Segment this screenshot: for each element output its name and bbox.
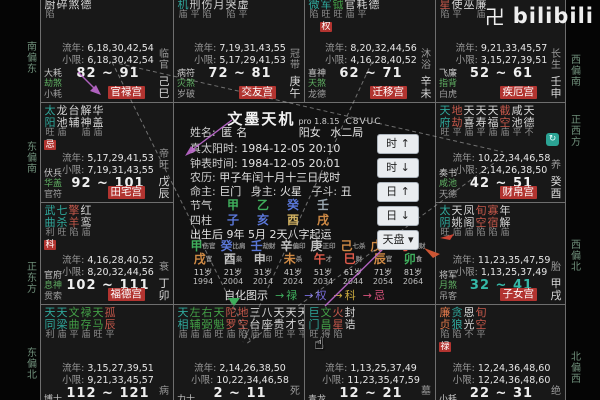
palace-numbers: 流年: 2,14,26,38,50小限: 10,22,34,46,582 ~ 1… [190,363,290,400]
xiaoxian-values: 11,23,35,47,59 [347,375,420,386]
star-旬空: 旬空陷 [475,205,487,239]
palace-numbers: 流年: 11,23,35,47,59小限: 1,13,25,37,4932 ~ … [452,255,551,292]
branch-辛未: 辛 未 [420,76,432,100]
palace-branch-col: 冠 带庚 午 [289,49,301,100]
star-status [73,128,76,139]
dayun-age: 41岁 [278,268,308,277]
liunian-line: 流年: 10,22,34,46,58 [452,153,551,165]
side-god: 月煞 [439,281,457,292]
changsheng-star: 死 [289,386,301,397]
liunian-line: 流年: 1,13,25,37,49 [321,363,421,375]
star-char-top: 太 [440,205,451,217]
dayun-age: 21岁 [218,268,248,277]
star-天梁: 天梁庙 [56,307,68,341]
palace-hai[interactable]: 廉贞陷禄贪狼陷恩光不旬空平流年: 12,24,36,48,60小限: 12,24… [435,304,566,400]
liunian-values: 2,14,26,38,50 [219,363,285,374]
star-status: 庙 [190,330,199,341]
star-天魁: 天魁旺 [213,307,225,341]
palace-numbers: 流年: 1,13,25,37,49小限: 11,23,35,47,5912 ~ … [321,363,421,400]
star-char-top: 天 [476,105,487,117]
star-char-top: 天 [214,307,225,319]
star-char-bottom: 煞 [69,0,80,10]
palace-branch-col: 胎甲 戌 [550,262,562,302]
star-status: 庙 [226,330,235,341]
star-status: 旺 [274,330,283,341]
palace-side-gods: 伏兵华盖官符 [44,169,62,201]
star-咸池: 咸池平 [511,105,523,139]
star-char-bottom: 刑 [190,0,201,10]
side-god: 岁破 [177,90,195,101]
star-封诰: 封诰 [344,307,356,341]
star-char-bottom: 罗 [226,319,237,331]
star-char-top: 天 [440,105,451,117]
liunian-label: 流年: [194,43,216,54]
branch-癸酉: 癸 酉 [550,176,562,200]
star-char-bottom: 辰 [105,319,116,331]
star-char-bottom: 贵 [274,319,285,331]
star-char-top: 廉 [440,307,451,319]
dayun-year: 2034 [308,277,338,286]
changsheng-star: 胎 [550,262,562,273]
dayun-year: 2044 [338,277,368,286]
decade-range: 72 ~ 81 [190,68,290,80]
palace-numbers: 流年: 3,15,27,39,51小限: 9,21,33,45,57112 ~ … [57,363,159,400]
dayun-year: 2014 [248,277,278,286]
legend-item-权: 权 [316,289,327,302]
legend-label: 自化图示 [224,289,268,302]
star-char-bottom: 星 [440,0,451,10]
star-地劫: 地劫平 [451,105,463,139]
liunian-values: 6,18,30,42,54 [87,43,153,54]
legend-arrow: → [275,289,284,302]
star-天钺: 天钺旺 [332,0,344,32]
liunian-line: 流年: 12,24,36,48,60 [452,363,551,375]
xiaoxian-label: 小限: [325,55,347,66]
star-status: 庙 [345,10,354,21]
star-char-top: 右 [202,307,213,319]
star-char-top: 红 [81,205,92,217]
dayun-column[interactable]: 壬劫财申印31岁2014 [248,240,278,286]
star-char-bottom: 杀 [57,217,68,229]
star-天同: 天同利 [44,307,56,341]
palace-si[interactable]: 天厨陷破碎 阴煞 月德 流年: 6,18,30,42,54小限: 6,18,30… [40,0,174,103]
xiaoxian-label: 小限: [191,375,213,386]
palace-side-gods: 病符灾煞岁破 [177,69,195,101]
star-status: 平 [105,330,114,341]
button-天盘[interactable]: 天盘 ▾ [377,230,419,250]
palace-side-gods: 喜神天煞龙德 [308,69,326,101]
palace-you[interactable]: 天府旺地劫平天喜庙天寿平天福庙截空庙咸池平天德不流年: 10,22,34,46,… [435,102,566,203]
star-status: 陷 [202,10,211,21]
star-row: 武曲利科七杀旺擎羊陷红鸾庙 [44,205,92,250]
star-擎羊: 擎羊陷 [68,205,80,250]
branch-庚午: 庚 午 [289,76,301,100]
dayun-branch: 戌官 [188,253,218,265]
star-龙德: 龙德 [368,0,380,32]
star-char-bottom: 军 [321,0,332,10]
palace-side-gods: 小耗亡神病符 [439,395,457,400]
star-char-bottom: 德 [524,117,535,129]
liunian-values: 9,21,33,45,57 [481,43,547,54]
dayun-column[interactable]: 庚正印午才51岁2034 [308,240,338,286]
star-char-top: 孤 [105,307,116,319]
decade-range: 12 ~ 21 [321,388,421,400]
dayun-branch: 申印 [248,253,278,265]
palace-side-gods: 力士攀鞍晦气 [177,395,195,400]
palace-side-gods: 官府息神贯索 [44,271,62,303]
side-god: 龙德 [308,90,326,101]
star-char-top: 擎 [69,205,80,217]
star-破军: 破军旺权 [320,0,332,32]
star-武曲: 武曲利科 [44,205,56,250]
palace-branch-col: 帝 旺戊 辰 [158,149,170,200]
sihua-marker-权: 权 [320,22,331,32]
changsheng-star: 帝 旺 [158,149,170,171]
dayun-age: 51岁 [308,268,338,277]
changsheng-star: 衰 [158,262,170,273]
star-row: 太阳旺忌龙池庙台辅 解神庙华盖庙 [44,105,104,150]
compass-label-西偏北: 西 偏 北 [569,240,583,273]
star-char-bottom: 光 [464,319,475,331]
xiaoxian-values: 8,20,32,44,56 [87,267,153,278]
decade-range: 22 ~ 31 [452,388,551,400]
liunian-values: 11,23,35,47,59 [478,255,551,266]
star-status: 旺 [45,128,54,139]
xiaoxian-label: 小限: [62,165,84,176]
true-solar-label: 真太阳时: [190,142,238,155]
star-row: 铃星陷天使平天巫 蜚廉庙 [439,0,487,21]
star-status: 庙 [464,128,473,139]
star-char-top: 文 [69,307,80,319]
star-char-bottom: 伤 [202,0,213,10]
sihua-marker-科: 科 [44,240,55,250]
compass-label-正东方: 正 东 方 [25,262,39,295]
dayun-year: 2004 [218,277,248,286]
star-天机: 天机庙 [177,0,189,21]
star-char-bottom: 劫 [452,117,463,129]
star-status: 庙 [262,330,271,341]
star-status: 庙 [488,128,497,139]
star-解神: 解神庙 [80,105,92,150]
decade-range: 112 ~ 121 [57,388,159,400]
star-status: 庙 [500,228,509,239]
branch-己巳: 己 巳 [158,76,170,100]
palace-numbers: 流年: 9,21,33,45,57小限: 3,15,27,39,5152 ~ 6… [452,43,551,80]
xiaoxian-values: 6,18,30,42,54 [87,55,153,66]
star-status: 旺 [440,228,449,239]
name-line: 姓名: 匿名 阳女 水二局 [190,124,363,140]
liunian-label: 流年: [62,255,84,266]
star-char-bottom: 福 [488,117,499,129]
palace-numbers: 流年: 8,20,32,44,56小限: 4,16,28,40,5262 ~ 7… [321,43,421,80]
star-char-top: 三 [250,307,261,319]
changsheng-star: 养 [550,160,562,171]
palace-name-si[interactable]: 官禄宫 [108,86,146,99]
star-天府: 天府旺 [439,105,451,139]
liunian-values: 12,24,36,48,60 [478,363,551,374]
dayun-stem: 庚正印 [308,240,338,252]
star-row: 天相庙左辅庙右弼庙天魁旺陀罗庙地空陷三台庙八座庙天贵旺天才平天空平 [177,307,305,341]
xiaoxian-label: 小限: [456,165,478,176]
star-截空: 截空庙 [499,105,511,139]
dayun-column[interactable]: 癸比肩酉枭21岁2004 [218,240,248,286]
star-铃星: 铃星陷 [439,0,451,21]
star-char-bottom: 哭 [226,0,237,10]
star-status: 庙 [178,10,187,21]
star-天福: 天福庙 [487,105,499,139]
xiaoxian-values: 10,22,34,46,58 [216,375,289,386]
star-row: 天府旺地劫平天喜庙天寿平天福庙截空庙咸池平天德不 [439,105,535,139]
star-寡宿: 寡宿陷 [487,205,499,239]
palace-xu[interactable]: 太阴旺天姚庙凤阁庙旬空陷寡宿陷年解庙流年: 11,23,35,47,59小限: … [435,202,566,305]
xiaoxian-label: 小限: [456,267,478,278]
gender-value: 阳女 [299,126,321,139]
star-char-top: 火 [333,307,344,319]
dayun-stem: 甲伤官 [188,240,218,252]
star-华盖: 华盖庙 [92,105,104,150]
liunian-line: 流年: 8,20,32,44,56 [321,43,421,55]
side-god: 灾煞 [177,79,195,90]
star-status: 庙 [464,228,473,239]
side-god: 大耗 [44,69,62,80]
star-status: 庙 [250,330,259,341]
star-char-bottom: 鸾 [81,217,92,229]
legend-arrow: → [304,289,313,302]
xiaoxian-label: 小限: [194,55,216,66]
star-char-bottom: 池 [57,117,68,129]
star-天官: 天官庙 [344,0,356,32]
star-char-top: 旬 [476,205,487,217]
palace-name-you[interactable]: 财帛宫 [500,186,538,199]
star-char-top: 天 [464,105,475,117]
side-god: 吊客 [439,292,457,303]
star-char-bottom: 寿 [476,117,487,129]
liunian-values: 4,16,28,40,52 [87,255,153,266]
liunian-line: 流年: 7,19,31,43,55 [190,43,290,55]
decade-range: 52 ~ 61 [452,68,551,80]
palace-name-chen[interactable]: 田宅宫 [108,186,146,199]
button-日-up[interactable]: 日 ↑ [377,182,419,202]
palace-branch-col: 墓丙 子 [420,386,432,400]
changsheng-star: 长 生 [550,49,562,71]
dayun-column[interactable]: 己七杀巳财61岁2044 [338,240,368,286]
palace-name-wu[interactable]: 交友宫 [239,86,277,99]
dayun-stem: 癸比肩 [218,240,248,252]
star-左辅: 左辅庙 [189,307,201,341]
branch-甲戌: 甲 戌 [550,278,562,302]
star-char-top: 天 [488,105,499,117]
side-god: 病符 [177,69,195,80]
liunian-line: 流年: 4,16,28,40,52 [57,255,159,267]
zidou-value: 丑 [341,185,352,198]
star-char-top: 天 [274,307,285,319]
star-天虚: 天虚平 [237,0,249,21]
star-禄存: 禄存庙 [80,307,92,341]
true-solar-line: 真太阳时: 1984-12-05 20:10 [190,140,340,156]
sihua-legend: 自化图示→禄→权→科→忌 [174,287,435,303]
changsheng-star: 墓 [420,386,432,397]
star-廉贞: 廉贞陷禄 [439,307,451,352]
star-char-bottom: 耗 [357,0,368,10]
star-char-top: 天 [57,307,68,319]
star-月德: 月德 [80,0,92,21]
star-char-bottom: 机 [178,0,189,10]
star-char-bottom: 府 [440,117,451,129]
button-时-down[interactable]: 时 ↓ [377,158,419,178]
palace-branch-col: 病丙 寅 [158,386,170,400]
star-status: 庙 [81,330,90,341]
star-文曲: 文曲平 [68,307,80,341]
star-status [85,10,88,21]
star-status: 平 [452,128,461,139]
palace-wei[interactable]: 紫微陷破军旺权天钺旺天官庙天耗平龙德 流年: 8,20,32,44,56小限: … [304,0,436,103]
palace-numbers: 流年: 10,22,34,46,58小限: 2,14,26,38,5042 ~ … [452,153,551,190]
palace-branch-col: 沐 浴辛 未 [420,49,432,100]
star-陀罗: 陀罗庙 [225,307,237,341]
star-天刑: 天刑平 [189,0,201,21]
star-char-top: 七 [57,205,68,217]
compass-label-西偏南: 西 偏 南 [569,55,583,88]
star-三台: 三台庙 [249,307,261,341]
star-char-bottom: 存 [81,319,92,331]
liunian-values: 1,13,25,37,49 [350,363,416,374]
star-status: 平 [190,10,199,21]
xiaoxian-label: 小限: [62,55,84,66]
dayun-stem-tengod: 七杀 [353,242,366,250]
star-status: 平 [512,128,521,139]
star-char-top: 武 [45,205,56,217]
star-status [373,10,376,21]
star-恩光: 恩光不 [463,307,475,352]
star-status: 庙 [202,330,211,341]
star-天德: 天德不 [523,105,535,139]
button-时-up[interactable]: 时 ↑ [377,134,419,154]
star-status: 陷 [45,10,54,21]
palace-chou[interactable]: 天相庙左辅庙右弼庙天魁旺陀罗庙地空陷三台庙八座庙天贵旺天才平天空平流年: 2,1… [173,304,305,400]
star-status: 庙 [452,228,461,239]
xiaoxian-label: 小限: [453,375,475,386]
xiaoxian-values: 5,17,29,41,53 [219,55,285,66]
side-god: 贯索 [44,292,62,303]
star-紫微: 紫微陷 [308,0,320,32]
branch-壬申: 壬 申 [550,76,562,100]
star-row: 廉贞陷禄贪狼陷恩光不旬空平 [439,307,487,352]
liunian-values: 3,15,27,39,51 [87,363,153,374]
star-status: 平 [452,10,461,21]
palace-side-gods: 飞廉指背白虎 [439,69,457,101]
star-天巫: 天巫 [463,0,475,21]
palace-side-gods: 大耗劫煞小耗 [44,69,62,101]
liunian-values: 10,22,34,46,58 [478,153,551,164]
palace-name-shen[interactable]: 疾厄宫 [500,86,538,99]
star-char-bottom: 微 [309,0,320,10]
dayun-branch-tengod: 财 [356,255,363,263]
star-char-top: 太 [45,105,56,117]
palace-mao[interactable]: 武曲利科七杀旺擎羊陷红鸾庙流年: 4,16,28,40,52小限: 8,20,3… [40,202,174,305]
palace-branch-col: 绝乙 亥 [550,386,562,400]
star-status [218,10,221,21]
side-god: 官符 [44,190,62,201]
palace-wu[interactable]: 天机庙天刑平天伤陷天月 天哭陷天虚平流年: 7,19,31,43,55小限: 5… [173,0,305,103]
palace-name-wei[interactable]: 迁移宫 [370,86,408,99]
side-god: 飞廉 [439,69,457,80]
dayun-branch-tengod: 印 [266,255,273,263]
palace-chen[interactable]: 太阳旺忌龙池庙台辅 解神庙华盖庙流年: 5,17,29,41,53小限: 7,1… [40,102,174,203]
dayun-stem: 壬劫财 [248,240,278,252]
star-status: 陷 [333,330,342,341]
palace-side-gods: 青龙将星岁建 [308,395,326,400]
quick-action-icon[interactable]: ↻ [546,133,559,146]
dayun-column[interactable]: 甲伤官戌官11岁1994 [188,240,218,286]
star-row: 紫微陷破军旺权天钺旺天官庙天耗平龙德 [308,0,380,32]
star-char-bottom: 才 [286,319,297,331]
dayun-year: 2024 [278,277,308,286]
dayun-year: 1994 [188,277,218,286]
star-七杀: 七杀旺 [56,205,68,250]
star-char-top: 凤 [464,205,475,217]
palace-name-mao[interactable]: 福德宫 [108,288,146,301]
xiaoxian-values: 3,15,27,39,51 [481,55,547,66]
star-status: 陷 [440,330,449,341]
dayun-branch-tengod: 官 [206,255,213,263]
palace-numbers: 流年: 7,19,31,43,55小限: 5,17,29,41,5372 ~ 8… [190,43,290,80]
star-char-bottom: 钺 [333,0,344,10]
star-char-top: 天 [93,307,104,319]
star-char-top: 截 [500,105,511,117]
palace-name-xu[interactable]: 子女宫 [500,288,538,301]
dayun-stem-tengod: 正印 [323,242,336,250]
button-日-down[interactable]: 日 ↓ [377,206,419,226]
star-右弼: 右弼庙 [201,307,213,341]
star-status: 平 [286,330,295,341]
side-god: 指背 [439,79,457,90]
palace-branch-col: 临 官己 巳 [158,49,170,100]
star-status: 平 [476,128,485,139]
star-status: 利 [45,330,54,341]
dayun-column[interactable]: 辛偏印未杀41岁2024 [278,240,308,286]
star-char-top: 禄 [81,307,92,319]
liunian-label: 流年: [325,43,347,54]
star-八座: 八座庙 [261,307,273,341]
dayun-year: 2064 [398,277,428,286]
star-char-bottom: 月 [214,0,225,10]
star-status: 平 [238,10,247,21]
star-status: 陷 [309,10,318,21]
sihua-marker-忌: 忌 [44,140,55,150]
star-char-bottom: 台 [250,319,261,331]
liunian-line: 流年: 3,15,27,39,51 [57,363,159,375]
star-char-top: 旬 [476,307,487,319]
star-char-bottom: 空 [476,319,487,331]
star-row: 太阴旺天姚庙凤阁庙旬空陷寡宿陷年解庙 [439,205,511,239]
palace-yin[interactable]: 天同利天梁庙文曲平禄存庙天马旺孤辰平流年: 3,15,27,39,51小限: 9… [40,304,174,400]
star-char-top: 恩 [464,307,475,319]
compass-label-正西方: 正 西 方 [569,115,583,148]
side-god: 将军 [439,271,457,282]
star-status: 旺 [321,10,330,21]
swastika-glyph: 卍 [485,1,505,30]
xiaoxian-values: 12,24,36,48,60 [478,375,551,386]
star-char-bottom: 阁 [464,217,475,229]
name-label: 姓名: [190,126,216,139]
side-god: 青龙 [308,395,326,400]
star-char-top: 天 [178,307,189,319]
star-char-top: 华 [93,105,104,117]
star-status: 庙 [57,330,66,341]
side-god: 劫煞 [44,79,62,90]
app-window: 天厨陷破碎 阴煞 月德 流年: 6,18,30,42,54小限: 6,18,30… [0,0,600,400]
palace-branch-col: 养癸 酉 [550,160,562,200]
